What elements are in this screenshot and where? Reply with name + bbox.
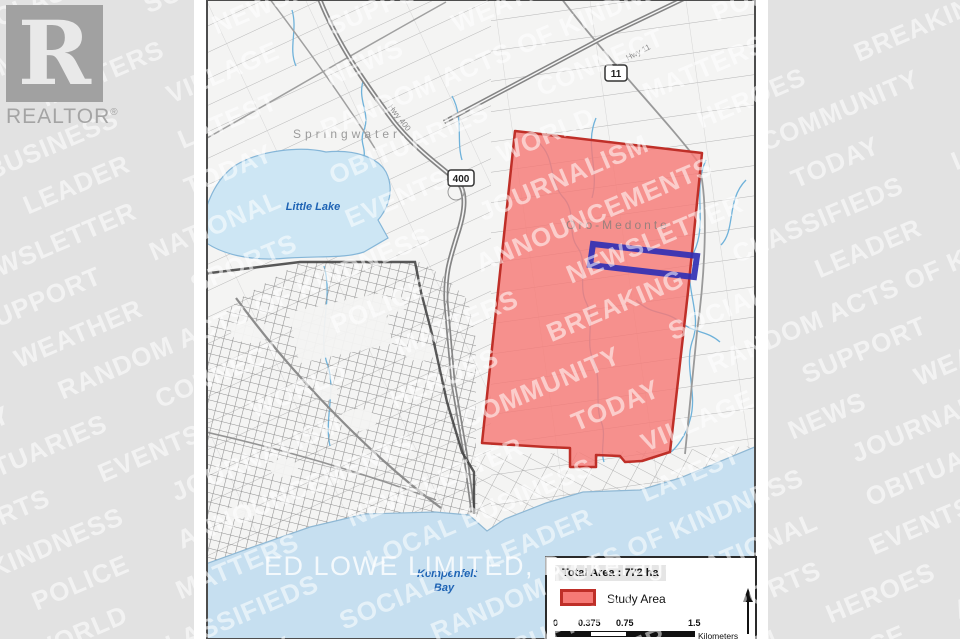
watermark-word: EVENTS bbox=[93, 418, 206, 489]
watermark-word: BREAKING bbox=[849, 0, 960, 67]
watermark-word: SUPPORT bbox=[797, 310, 931, 389]
scale-tick-0: 0 bbox=[553, 618, 558, 628]
watermark-word: NEWSLETTER bbox=[0, 196, 141, 298]
watermark-word: LEADER bbox=[810, 212, 926, 284]
watermark-word: ANNOUNCEMENTS bbox=[949, 498, 960, 625]
watermark-word: LEADER bbox=[19, 148, 135, 220]
scale-tick-15: 1.5 bbox=[688, 618, 701, 628]
north-arrow bbox=[741, 586, 755, 636]
bay-label-line2: Bay bbox=[434, 582, 455, 594]
watermark-word: WORLD bbox=[25, 599, 132, 639]
scale-tick-075: 0.75 bbox=[616, 618, 634, 628]
map-gutter-left bbox=[194, 0, 206, 639]
scale-bar bbox=[555, 631, 695, 637]
watermark-word: POLICE bbox=[27, 548, 133, 616]
hwy-400-shield: 400 bbox=[448, 170, 474, 186]
listing-image: Springwater Oro-Medonte Little Lake Kemp… bbox=[0, 0, 960, 639]
watermark-word: OBITUARIES bbox=[861, 418, 960, 512]
region-label-springwater: Springwater bbox=[293, 127, 401, 141]
watermark-word: JOURNALISM bbox=[847, 370, 960, 469]
map-gutter-right bbox=[756, 0, 768, 639]
map-image: Springwater Oro-Medonte Little Lake Kemp… bbox=[206, 0, 756, 639]
study-area-swatch bbox=[560, 589, 596, 606]
svg-text:400: 400 bbox=[453, 174, 470, 185]
watermark-word: SUPPORT bbox=[0, 260, 106, 339]
lake-label: Little Lake bbox=[286, 201, 340, 213]
watermark-word: EVENTS bbox=[864, 490, 960, 561]
scale-unit-label: Kilometers bbox=[698, 631, 738, 639]
watermark-word: POLICE bbox=[804, 618, 910, 639]
scale-tick-0375: 0.375 bbox=[578, 618, 601, 628]
watermark-word: NEWS bbox=[783, 386, 870, 446]
realtor-logo-box: R bbox=[6, 5, 103, 102]
registered-trademark-symbol: ® bbox=[110, 107, 118, 118]
watermark-word: WEATHER bbox=[909, 311, 960, 392]
scale-bar-white-segment bbox=[591, 632, 626, 636]
watermark-word: MATTERS bbox=[863, 633, 960, 639]
watermark-word: HEROES bbox=[821, 556, 939, 629]
watermark-word: OBITUARIES bbox=[0, 408, 112, 502]
watermark-word: TODAY bbox=[786, 130, 883, 194]
watermark-word: LOCAL BUSINESS bbox=[947, 53, 960, 176]
watermark-word: RANDOM ACTS OF KINDNESS bbox=[0, 501, 128, 639]
brokerage-overlay-text: ED LOWE LIMITED, Brokerage bbox=[264, 551, 681, 582]
realtor-logo-wordmark: REALTOR® bbox=[6, 105, 136, 129]
realtor-wordmark-text: REALTOR bbox=[6, 105, 110, 128]
watermark-word: WEATHER bbox=[10, 293, 147, 374]
region-label-oro-medonte: Oro-Medonte bbox=[566, 218, 670, 232]
study-area-legend-label: Study Area bbox=[607, 592, 666, 606]
watermark-word: TODAY bbox=[0, 399, 14, 463]
realtor-logo-r: R bbox=[18, 5, 91, 102]
watermark-word: COMMUNITY bbox=[756, 63, 924, 157]
hwy-11-shield: 11 bbox=[605, 65, 627, 81]
realtor-logo: R REALTOR® bbox=[6, 5, 136, 129]
map-svg: Springwater Oro-Medonte Little Lake Kemp… bbox=[206, 0, 756, 639]
watermark-word: SPORTS bbox=[0, 482, 54, 554]
svg-text:11: 11 bbox=[611, 69, 622, 80]
study-area-polygon bbox=[482, 131, 702, 467]
